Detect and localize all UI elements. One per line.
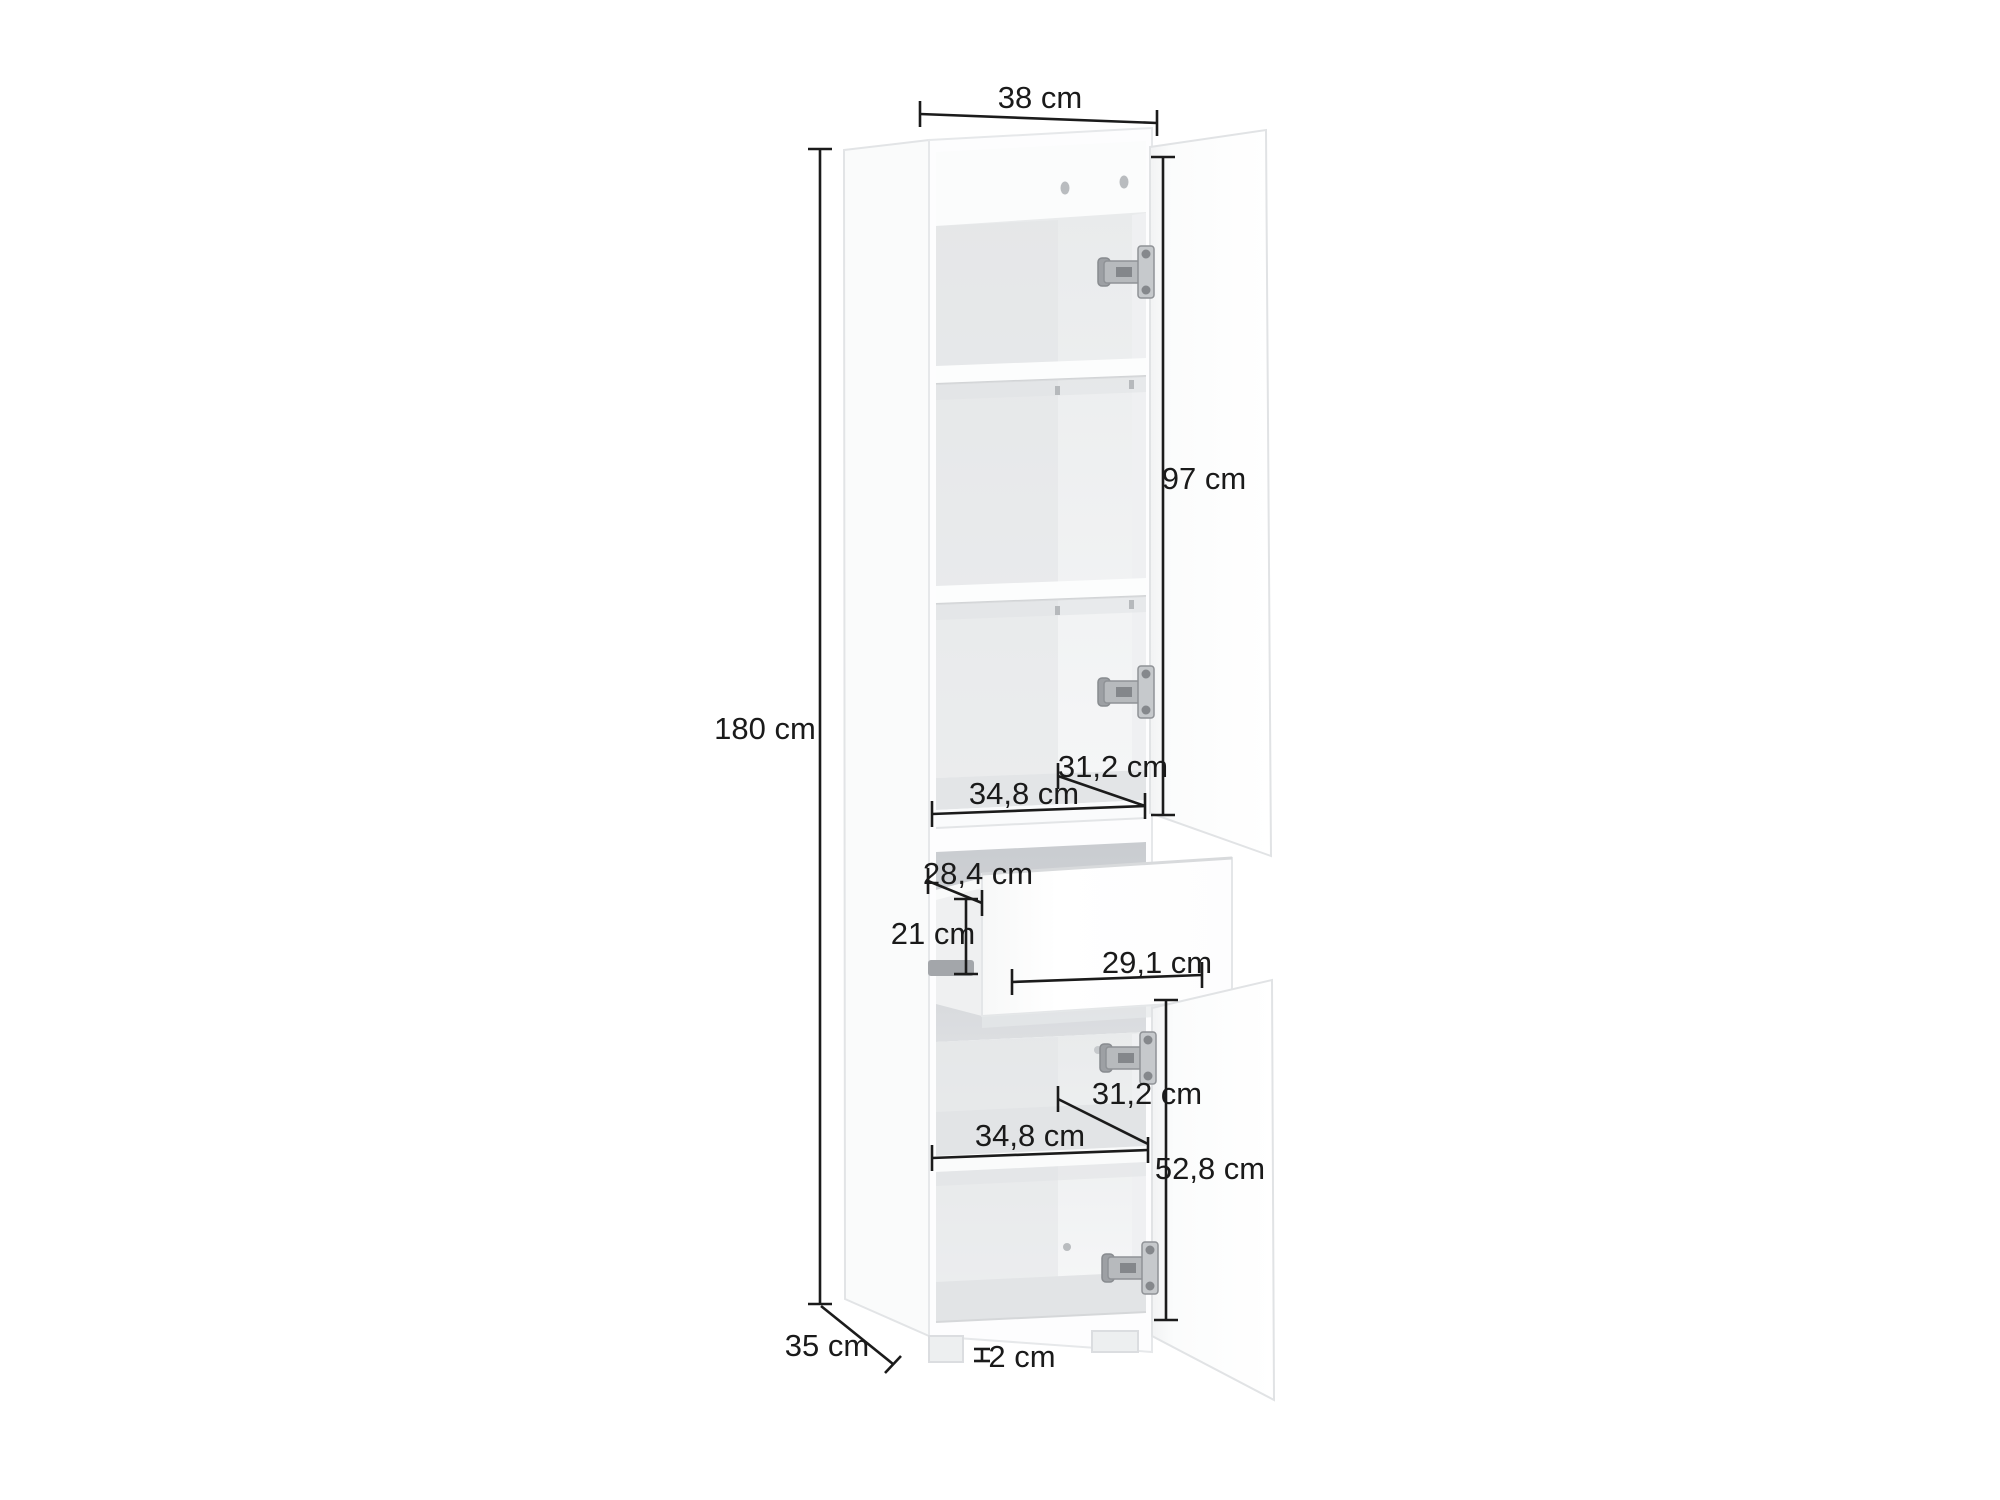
label-cabinet-depth: 35 cm [785,1328,869,1363]
upper-compartment [936,141,1146,828]
label-lower-interior-depth: 31,2 cm [1092,1076,1202,1111]
label-upper-interior-width: 34,8 cm [969,776,1079,811]
shelf-pin-icon [1129,600,1134,609]
shelf-pin-icon [1129,380,1134,389]
screw-hole-icon [1063,1243,1071,1251]
label-width-top: 38 cm [998,80,1082,115]
cabinet-foot [1092,1331,1138,1352]
label-lower-door-height: 52,8 cm [1155,1151,1265,1186]
cabinet-foot [929,1336,963,1362]
back-wall-shade [936,220,1058,778]
label-total-height: 180 cm [714,711,816,746]
label-drawer-depth: 28,4 cm [923,856,1033,891]
label-foot-height: 2 cm [988,1339,1055,1374]
label-upper-door-height: 97 cm [1162,461,1246,496]
left-side-panel [844,140,929,1336]
shelf-pin-icon [1055,606,1060,615]
label-lower-interior-width: 34,8 cm [975,1118,1085,1153]
lower-door-open [1152,980,1274,1400]
ceiling-panel [936,141,1146,226]
cabinet-diagram-canvas: 38 cm 180 cm 97 cm 31,2 cm 34,8 cm 28,4 … [0,0,2000,1500]
label-drawer-height: 21 cm [891,916,975,951]
product-dimension-diagram: 38 cm 180 cm 97 cm 31,2 cm 34,8 cm 28,4 … [0,0,2000,1500]
screw-hole-icon [1120,176,1129,189]
shelf-pin-icon [1055,386,1060,395]
label-drawer-width: 29,1 cm [1102,945,1212,980]
screw-hole-icon [1061,182,1070,195]
